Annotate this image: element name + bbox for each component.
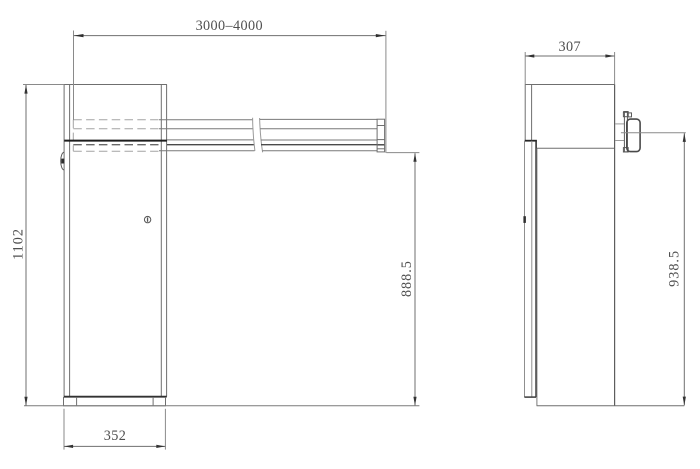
- svg-text:307: 307: [559, 39, 581, 55]
- svg-text:938.5: 938.5: [667, 250, 683, 287]
- svg-text:1102: 1102: [11, 228, 27, 260]
- svg-text:888.5: 888.5: [399, 260, 415, 297]
- svg-text:352: 352: [104, 428, 126, 444]
- svg-text:3000–4000: 3000–4000: [196, 18, 263, 34]
